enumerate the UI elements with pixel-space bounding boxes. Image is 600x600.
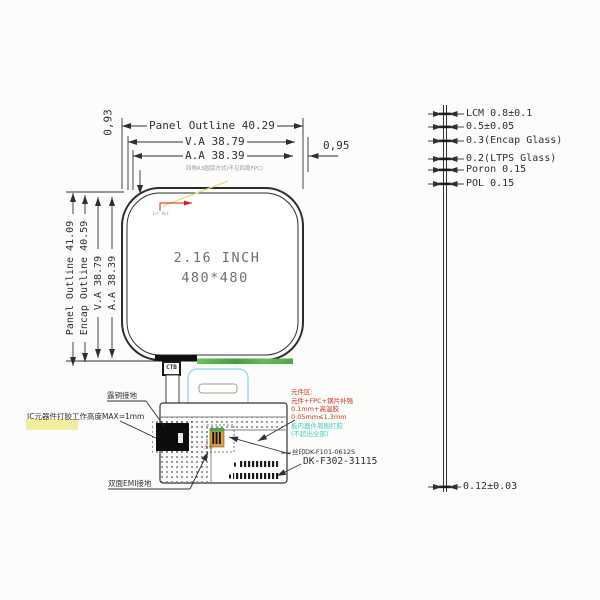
- copper-ground-label: 露铜接地: [107, 392, 137, 400]
- ctb-tab-label: CTB: [163, 365, 180, 371]
- dim-border-right: 0,95: [321, 140, 352, 151]
- engineering-drawing: Panel Outline 40.29 V.A 38.79 A.A 38.39 …: [0, 0, 600, 600]
- panel-resolution-label: 480*480: [172, 272, 258, 286]
- dim-panel-outline-h: Panel Outline 40.29: [147, 120, 277, 131]
- component-note-1: 元件区:: [291, 389, 313, 396]
- stack-layer-encap: 0.3(Encap Glass): [466, 136, 562, 146]
- part-number: DK-F302-31115: [303, 457, 377, 467]
- component-note-4: 0.05mm≤1.3mm: [291, 414, 347, 421]
- emi-ground-label: 双面EMI接地: [108, 480, 151, 488]
- first-dot-note: 1st Dot: [152, 212, 169, 216]
- dim-va-v: V.A 38.79: [94, 249, 104, 317]
- panel-bottom-green-strip: [197, 359, 293, 365]
- dim-va-h: V.A 38.79: [183, 136, 247, 147]
- panel-size-label: 2.16 INCH: [172, 252, 262, 266]
- component-note-3: 0.1mm+高温胶: [291, 406, 339, 413]
- stack-bottom-thickness: 0.12±0.03: [463, 482, 517, 492]
- stack-layer-lcm: LCM 0.8±0.1: [466, 109, 532, 119]
- stack-layer-05: 0.5±0.05: [466, 122, 514, 132]
- connector-marks: ①②: [204, 446, 213, 451]
- dim-encap-outline-v: Encap Outline 40.59: [80, 214, 90, 342]
- dim-aa-h: A.A 38.39: [183, 150, 247, 161]
- dim-panel-outline-v: Panel Outline 41.09: [66, 214, 76, 342]
- stackup-bar: [444, 105, 447, 492]
- drawing-linework: [0, 0, 600, 600]
- dim-aa-v: A.A 38.39: [108, 249, 118, 317]
- glue-note-2: (不超出全部): [291, 431, 329, 438]
- ic-height-note: IC元器件打胶工作高度MAX=1mm: [27, 413, 144, 421]
- glue-note-1: 板内器件周围打胶: [291, 423, 343, 430]
- component-note-2: 元件+FPC+钢片补强: [291, 398, 353, 405]
- stack-layer-pol: POL 0.15: [466, 179, 514, 189]
- stack-layer-poron: Poron 0.15: [466, 165, 526, 175]
- ic-chip: [152, 419, 193, 455]
- panel-bottom-black-bar: [155, 355, 197, 362]
- stack-layer-ltps: 0.2(LTPS Glass): [466, 154, 556, 164]
- silkscreen-label: 丝印DK-F101-0612S: [292, 449, 355, 456]
- dim-border-left: 0,93: [103, 104, 114, 142]
- corner-note: 四角R3圆弧方式(不见四周FPC): [186, 167, 263, 173]
